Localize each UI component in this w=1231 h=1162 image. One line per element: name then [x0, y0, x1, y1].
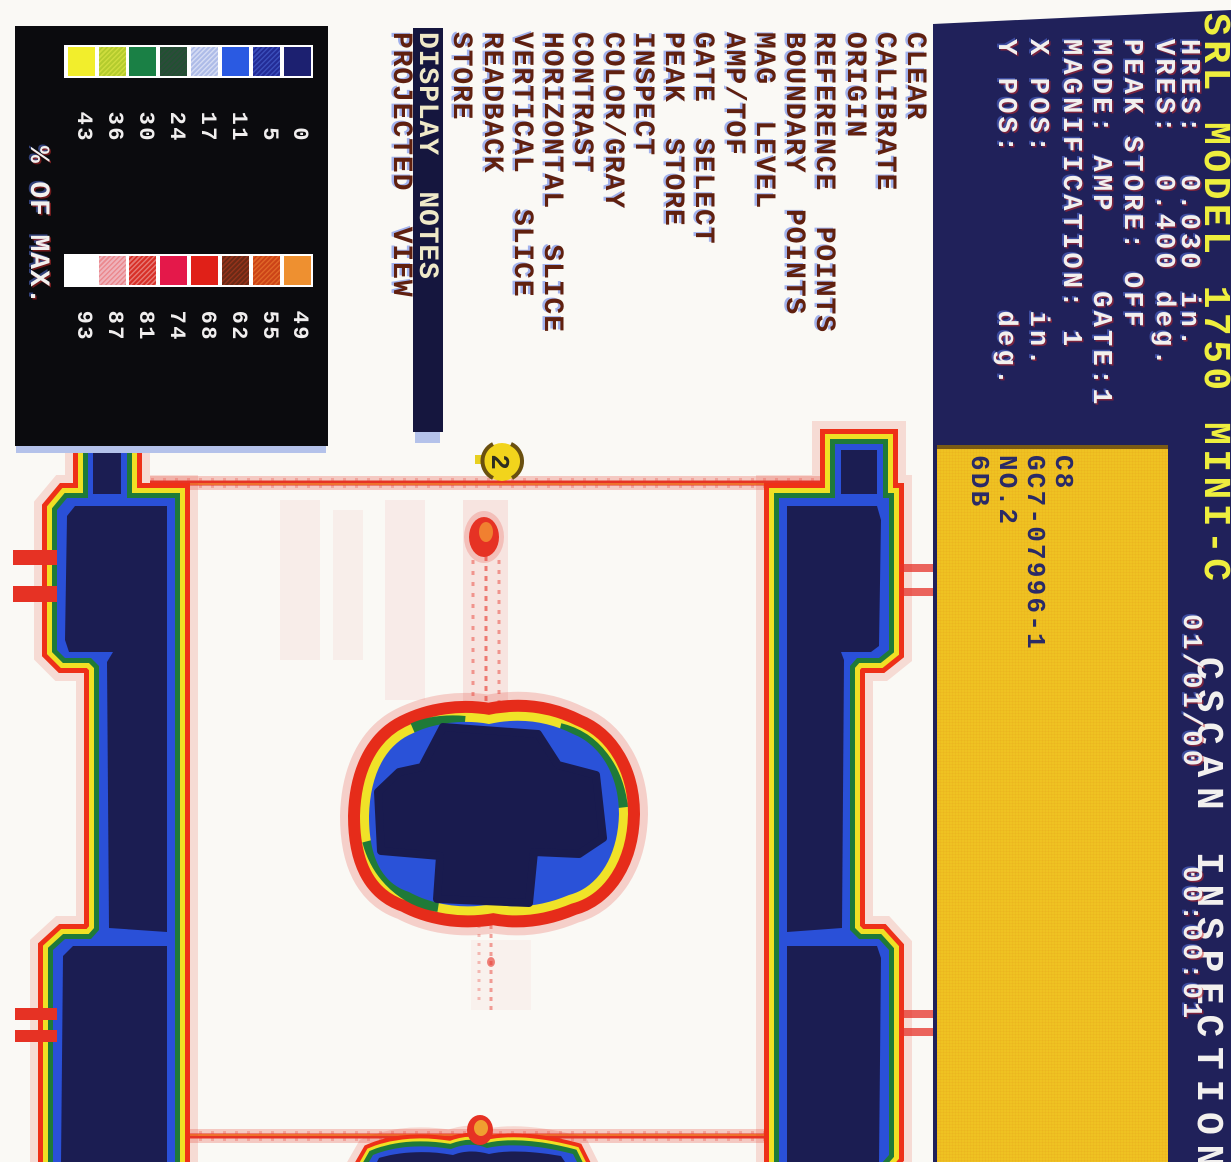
svg-text:2: 2: [484, 454, 514, 470]
